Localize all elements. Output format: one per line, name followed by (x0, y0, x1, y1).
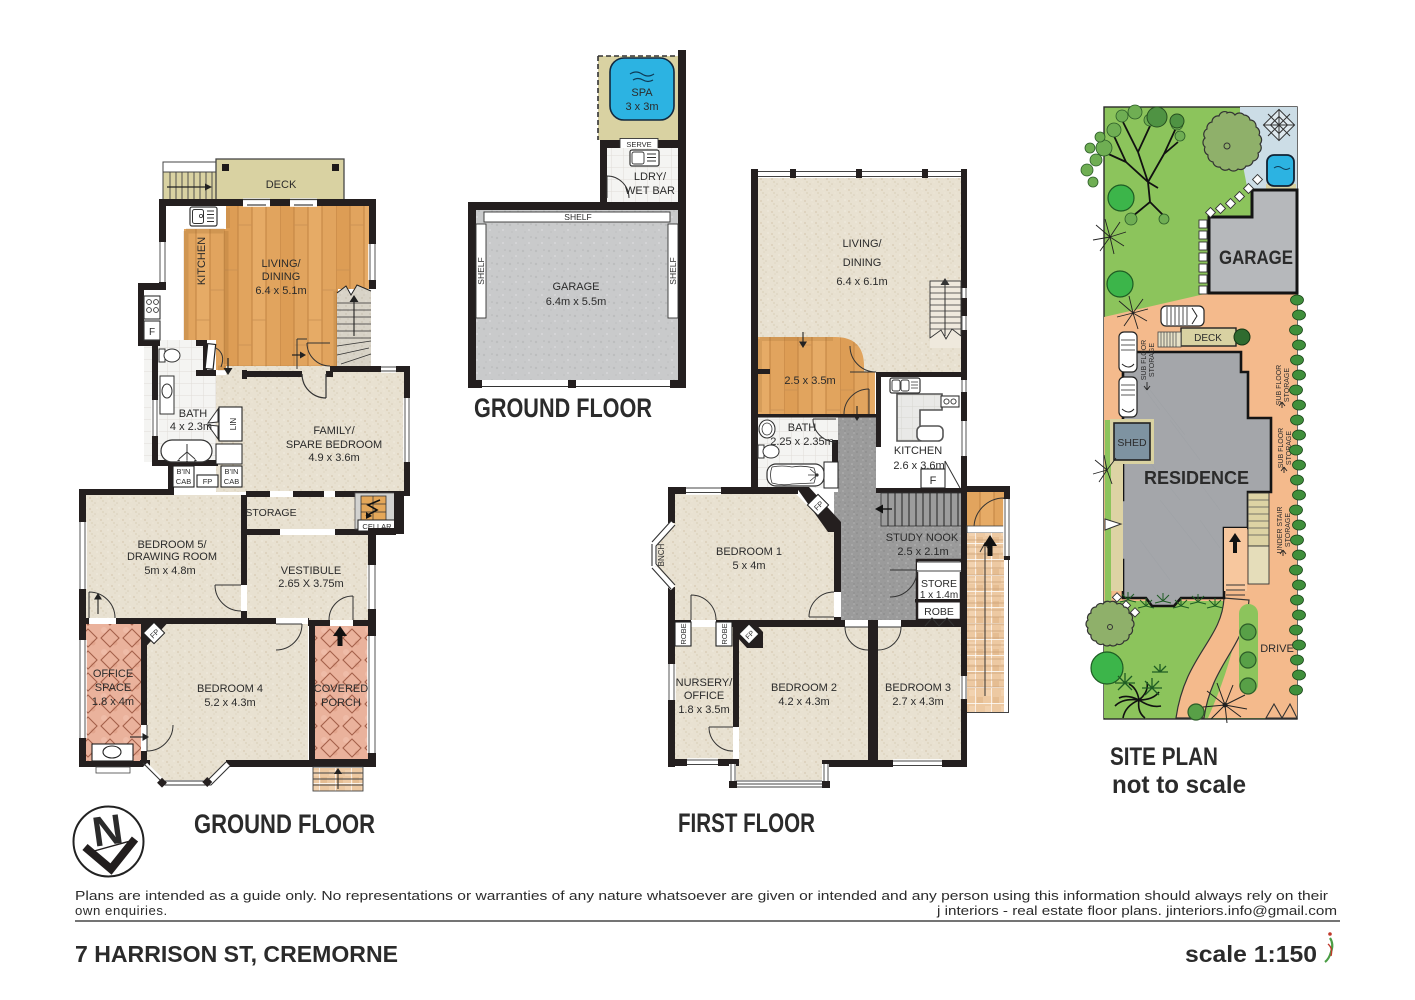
svg-text:DRAWING ROOM: DRAWING ROOM (127, 551, 217, 563)
svg-text:STORAGE: STORAGE (1149, 343, 1156, 377)
svg-text:OFFICE: OFFICE (684, 690, 724, 702)
svg-text:1.8 x 4m: 1.8 x 4m (92, 696, 134, 708)
svg-text:BATH: BATH (788, 422, 817, 434)
svg-text:FIRST FLOOR: FIRST FLOOR (678, 808, 815, 838)
svg-text:BEDROOM 2: BEDROOM 2 (771, 682, 837, 694)
svg-text:SHELF: SHELF (564, 212, 591, 222)
svg-text:BEDROOM 3: BEDROOM 3 (885, 682, 951, 694)
svg-text:GROUND FLOOR: GROUND FLOOR (194, 809, 375, 839)
svg-text:OFFICE: OFFICE (93, 668, 133, 680)
svg-text:VESTIBULE: VESTIBULE (281, 565, 342, 577)
svg-text:KITCHEN: KITCHEN (894, 445, 942, 457)
svg-text:not to scale: not to scale (1112, 771, 1246, 799)
svg-text:BATH: BATH (179, 408, 208, 420)
svg-text:COVERED: COVERED (314, 683, 368, 695)
svg-text:CAB: CAB (224, 477, 239, 486)
svg-text:B'IN: B'IN (177, 467, 191, 476)
svg-text:KITCHEN: KITCHEN (196, 237, 208, 285)
svg-text:F: F (930, 475, 937, 487)
svg-text:GARAGE: GARAGE (1219, 248, 1293, 269)
svg-text:DECK: DECK (266, 179, 297, 191)
svg-text:2.65 X 3.75m: 2.65 X 3.75m (278, 578, 343, 590)
svg-text:own enquiries.: own enquiries. (75, 903, 168, 918)
svg-text:j interiors - real estate floo: j interiors - real estate floor plans. j… (936, 903, 1337, 918)
svg-text:B'IN: B'IN (225, 467, 239, 476)
svg-text:5.2 x 4.3m: 5.2 x 4.3m (204, 697, 255, 709)
svg-text:SPARE BEDROOM: SPARE BEDROOM (286, 439, 382, 451)
svg-text:SERVE: SERVE (626, 140, 651, 149)
svg-text:WET BAR: WET BAR (625, 185, 675, 197)
svg-text:2.7 x 4.3m: 2.7 x 4.3m (892, 696, 943, 708)
svg-text:SPACE: SPACE (95, 682, 131, 694)
svg-text:STORE: STORE (921, 578, 957, 590)
svg-text:6.4 x 5.1m: 6.4 x 5.1m (255, 285, 306, 297)
svg-text:5 x 4m: 5 x 4m (732, 560, 765, 572)
svg-text:scale 1:150: scale 1:150 (1185, 941, 1317, 967)
svg-text:GROUND FLOOR: GROUND FLOOR (474, 393, 652, 423)
svg-text:3 x 3m: 3 x 3m (625, 101, 658, 113)
svg-text:1.8 x 3.5m: 1.8 x 3.5m (678, 704, 729, 716)
svg-text:RESIDENCE: RESIDENCE (1144, 468, 1249, 488)
svg-text:ROBE: ROBE (924, 606, 954, 618)
svg-text:SUB FLOOR: SUB FLOOR (1141, 340, 1148, 380)
svg-text:4.9 x 3.6m: 4.9 x 3.6m (308, 452, 359, 464)
svg-text:DECK: DECK (1194, 333, 1222, 344)
svg-text:4 x 2.3m: 4 x 2.3m (170, 421, 212, 433)
svg-text:1 x 1.4m: 1 x 1.4m (920, 590, 958, 601)
svg-text:CAB: CAB (176, 477, 191, 486)
svg-text:LIVING/: LIVING/ (261, 258, 301, 270)
svg-text:BEDROOM 5/: BEDROOM 5/ (137, 539, 207, 551)
svg-text:SHED: SHED (1117, 437, 1147, 449)
svg-text:FP: FP (203, 477, 213, 486)
svg-text:BNCH: BNCH (657, 543, 666, 566)
svg-text:FAMILY/: FAMILY/ (313, 425, 355, 437)
svg-text:F: F (149, 327, 155, 338)
svg-text:SUB FLOOR: SUB FLOOR (1278, 428, 1285, 468)
svg-text:2.5 x 3.5m: 2.5 x 3.5m (784, 375, 835, 387)
svg-text:2.6 x 3.6m: 2.6 x 3.6m (893, 460, 944, 472)
svg-text:BEDROOM 4: BEDROOM 4 (197, 683, 263, 695)
svg-text:SUB FLOOR: SUB FLOOR (1276, 365, 1283, 405)
svg-text:LIVING/: LIVING/ (842, 238, 882, 250)
svg-text:UNDER STAIR: UNDER STAIR (1277, 507, 1284, 554)
svg-text:BEDROOM 1: BEDROOM 1 (716, 546, 782, 558)
svg-text:GARAGE: GARAGE (552, 281, 599, 293)
svg-text:STUDY NOOK: STUDY NOOK (886, 532, 959, 544)
svg-text:SHELF: SHELF (668, 257, 678, 284)
svg-text:DINING: DINING (843, 257, 882, 269)
svg-text:SPA: SPA (631, 87, 653, 99)
svg-text:SHELF: SHELF (476, 257, 486, 284)
svg-text:STORAGE: STORAGE (1284, 368, 1291, 402)
svg-text:N: N (89, 805, 126, 856)
svg-text:SITE PLAN: SITE PLAN (1110, 743, 1218, 771)
svg-text:Plans are intended as a guide: Plans are intended as a guide only. No r… (75, 888, 1329, 903)
svg-text:DINING: DINING (262, 271, 301, 283)
svg-text:2.25 x 2.35m: 2.25 x 2.35m (770, 436, 834, 448)
svg-text:7 HARRISON ST, CREMORNE: 7 HARRISON ST, CREMORNE (75, 941, 398, 967)
svg-text:LIN: LIN (229, 418, 238, 431)
svg-text:4.2 x 4.3m: 4.2 x 4.3m (778, 696, 829, 708)
svg-text:6.4 x 6.1m: 6.4 x 6.1m (836, 276, 887, 288)
svg-text:LDRY/: LDRY/ (634, 171, 667, 183)
svg-text:STORAGE: STORAGE (245, 507, 296, 519)
svg-text:5m x 4.8m: 5m x 4.8m (144, 565, 195, 577)
svg-text:ROBE: ROBE (679, 623, 688, 644)
svg-text:PORCH: PORCH (321, 697, 361, 709)
svg-text:NURSERY/: NURSERY/ (676, 677, 734, 689)
svg-text:ROBE: ROBE (720, 623, 729, 644)
svg-text:2.5 x 2.1m: 2.5 x 2.1m (897, 546, 948, 558)
svg-text:6.4m x 5.5m: 6.4m x 5.5m (546, 296, 607, 308)
svg-text:DRIVE: DRIVE (1260, 643, 1294, 655)
